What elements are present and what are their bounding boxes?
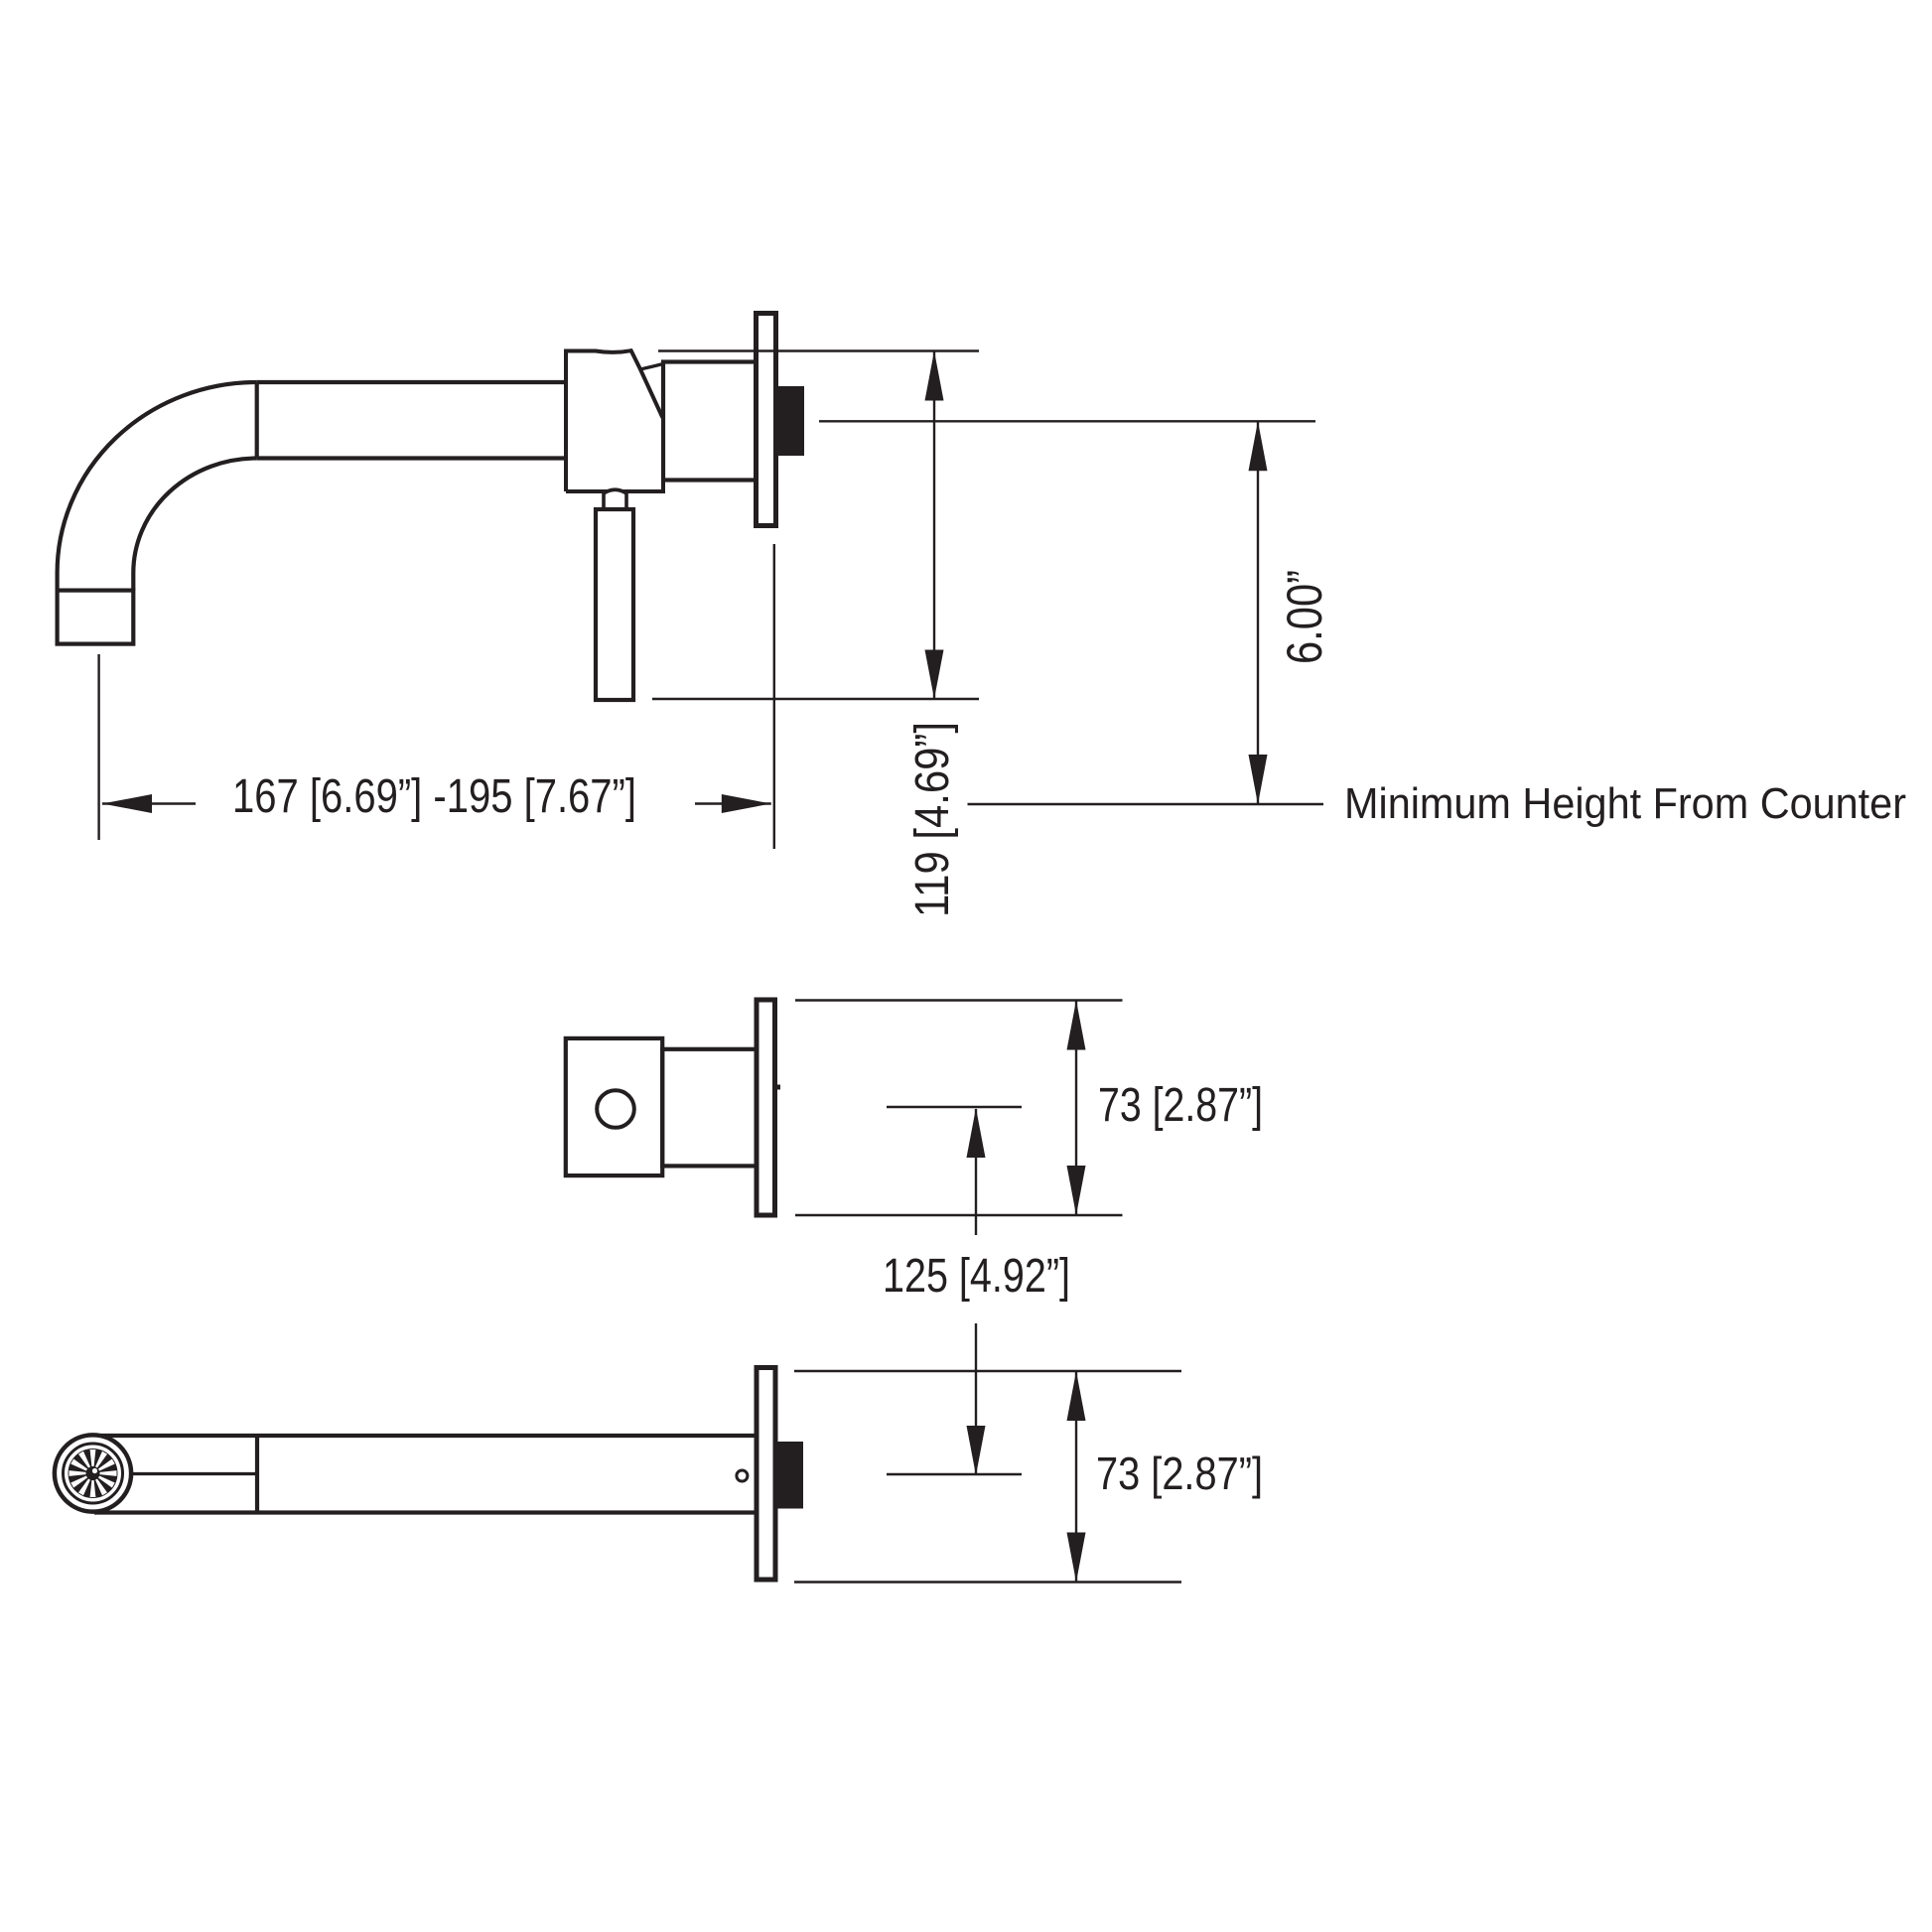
- svg-text:119 [4.69”]: 119 [4.69”]: [906, 722, 959, 917]
- svg-text:73 [2.87”]: 73 [2.87”]: [1098, 1079, 1263, 1132]
- svg-text:Minimum Height From Counter: Minimum Height From Counter: [1344, 779, 1906, 828]
- svg-text:6.00”: 6.00”: [1277, 570, 1332, 664]
- svg-text:73 [2.87”]: 73 [2.87”]: [1096, 1448, 1263, 1499]
- svg-text:125 [4.92”]: 125 [4.92”]: [883, 1250, 1070, 1303]
- svg-text:167 [6.69”] -195 [7.67”]: 167 [6.69”] -195 [7.67”]: [232, 770, 636, 823]
